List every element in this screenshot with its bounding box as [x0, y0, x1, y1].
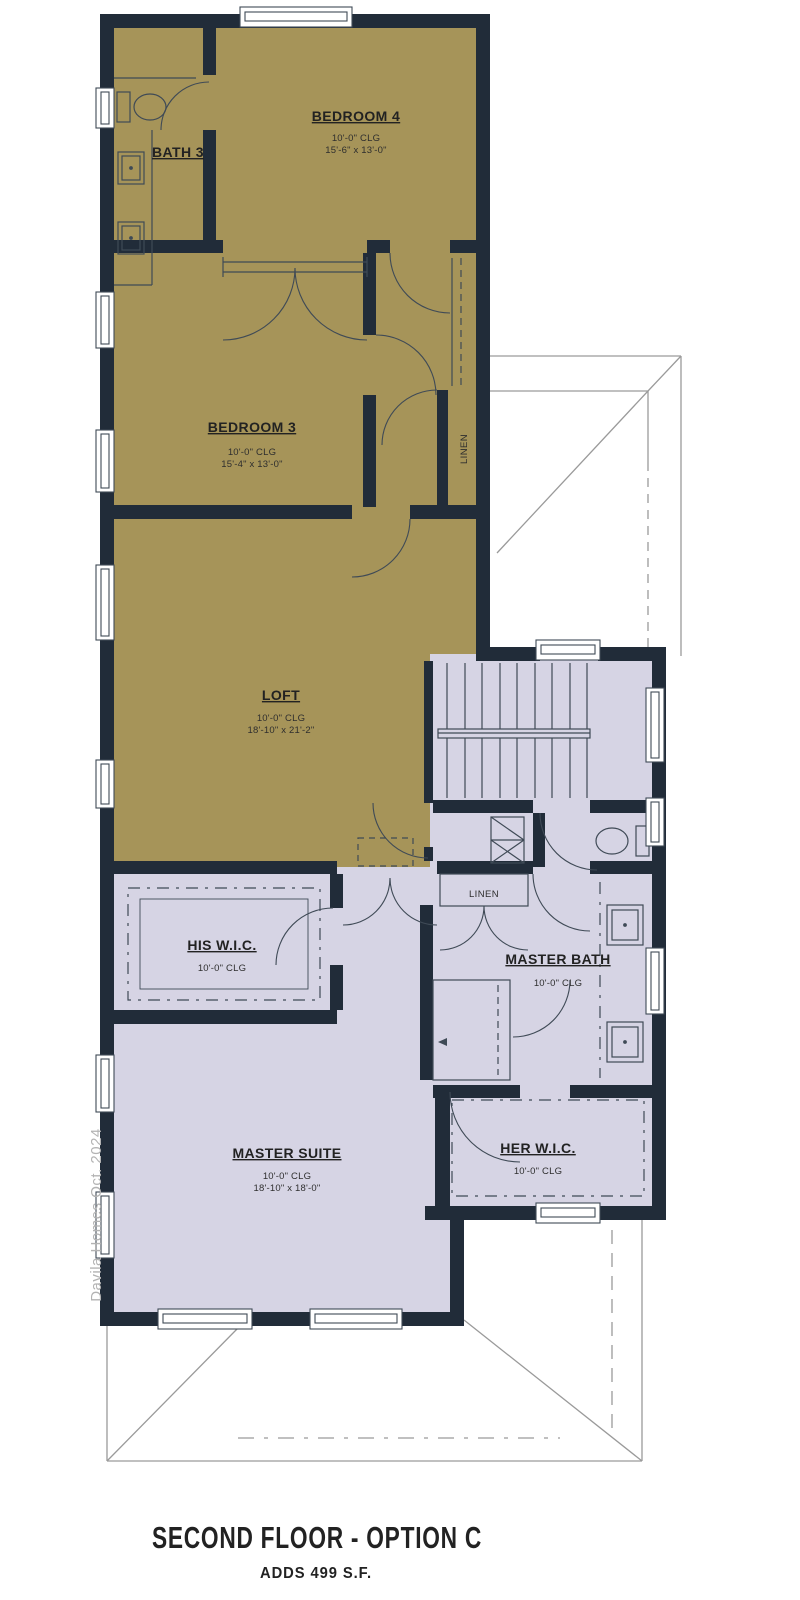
wall-stair-bottom-b	[590, 800, 652, 813]
window-left-loft-b	[96, 760, 114, 808]
wall-mastersuite-right	[450, 1206, 464, 1326]
masterbath-clg: 10'-0" CLG	[534, 978, 582, 989]
wall-exterior-bottom	[100, 1312, 464, 1326]
floor-plan-drawing: BATH 3 BEDROOM 4 10'-0" CLG 15'-6" x 13'…	[0, 0, 800, 1600]
window-left-loft-a	[96, 565, 114, 640]
bath3-label: BATH 3	[152, 144, 204, 160]
wall-exterior-right-upper	[476, 14, 490, 661]
herwic-label: HER W.I.C.	[500, 1140, 576, 1156]
window-left-mastersuite-a	[96, 1055, 114, 1112]
linen-upper-label: LINEN	[459, 434, 470, 464]
wall-loft-stair-stub	[424, 847, 433, 861]
wall-herwic-bottom-a	[425, 1206, 538, 1220]
masterbath-label: MASTER BATH	[505, 951, 610, 967]
wall-herwic-bottom-b	[598, 1206, 666, 1220]
hiswic-clg: 10'-0" CLG	[198, 963, 246, 974]
window-herwic-bottom	[536, 1203, 600, 1223]
watermark-text: Davila Homes Oct. 2024	[88, 1128, 105, 1302]
bedroom4-label: BEDROOM 4	[312, 108, 400, 124]
window-right-stairs	[646, 688, 664, 762]
window-mastersuite-bottom-a	[158, 1309, 252, 1329]
loft-label: LOFT	[262, 687, 300, 703]
wall-bath3-divider-b	[203, 130, 216, 253]
floor-plan-page: BATH 3 BEDROOM 4 10'-0" CLG 15'-6" x 13'…	[0, 0, 800, 1600]
bedroom4-clg: 10'-0" CLG	[332, 133, 380, 144]
window-stair-top	[536, 640, 600, 660]
wall-hiswic-top	[114, 861, 337, 874]
wall-utility-toilet-divider	[533, 813, 545, 867]
wall-stair-bottom-a	[433, 800, 533, 813]
wall-bed4-bed3-c	[450, 240, 476, 253]
wall-hall-bath-divider	[420, 905, 433, 1080]
window-mastersuite-bottom-b	[310, 1309, 402, 1329]
mastersuite-dims: 18'-10" x 18'-0"	[254, 1183, 321, 1194]
wall-linen-upper-left	[437, 390, 448, 507]
wall-bed4-bed3-b	[367, 240, 390, 253]
bedroom3-dims: 15'-4" x 13'-0"	[221, 459, 282, 470]
hiswic-label: HIS W.I.C.	[187, 937, 256, 953]
window-right-masterbath	[646, 948, 664, 1014]
linen-hall-label: LINEN	[469, 889, 499, 900]
wall-bed3-hall-a	[363, 253, 376, 335]
title-block: SECOND FLOOR - OPTION C ADDS 499 S.F.	[152, 1520, 482, 1582]
window-left-bath3	[96, 88, 114, 128]
mastersuite-label: MASTER SUITE	[232, 1145, 341, 1161]
window-left-bed3-a	[96, 292, 114, 348]
wall-bed4-bed3-a	[114, 240, 223, 253]
wall-bed3-bottom	[114, 505, 352, 519]
window-top-bedroom4	[240, 7, 352, 27]
loft-clg: 10'-0" CLG	[257, 713, 305, 724]
wall-hall-bottom	[410, 505, 476, 519]
wall-bed3-hall-b	[363, 395, 376, 507]
bedroom3-label: BEDROOM 3	[208, 419, 296, 435]
mastersuite-clg: 10'-0" CLG	[263, 1171, 311, 1182]
wall-stair-top-a	[476, 647, 540, 661]
bedroom3-clg: 10'-0" CLG	[228, 447, 276, 458]
wall-herwic-top-b	[570, 1085, 666, 1098]
plan-title: SECOND FLOOR - OPTION C	[152, 1520, 482, 1555]
window-left-bed3-b	[96, 430, 114, 492]
wall-mastersuite-herwic-divider	[435, 1085, 450, 1206]
floor-fills	[107, 21, 659, 1319]
wall-hiswic-bottom	[114, 1010, 337, 1024]
bedroom4-dims: 15'-6" x 13'-0"	[325, 145, 386, 156]
wall-bath3-divider-a	[203, 28, 216, 75]
wall-hiswic-right-b	[330, 965, 343, 1010]
herwic-clg: 10'-0" CLG	[514, 1166, 562, 1177]
wall-hiswic-right-a	[330, 874, 343, 908]
roof-outline-upper	[490, 356, 681, 656]
wall-loft-stair-divider	[424, 661, 433, 803]
plan-subtitle: ADDS 499 S.F.	[260, 1565, 372, 1582]
window-right-toilet	[646, 798, 664, 846]
loft-dims: 18'-10" x 21'-2"	[248, 725, 315, 736]
wall-bath-top-b	[590, 861, 666, 874]
